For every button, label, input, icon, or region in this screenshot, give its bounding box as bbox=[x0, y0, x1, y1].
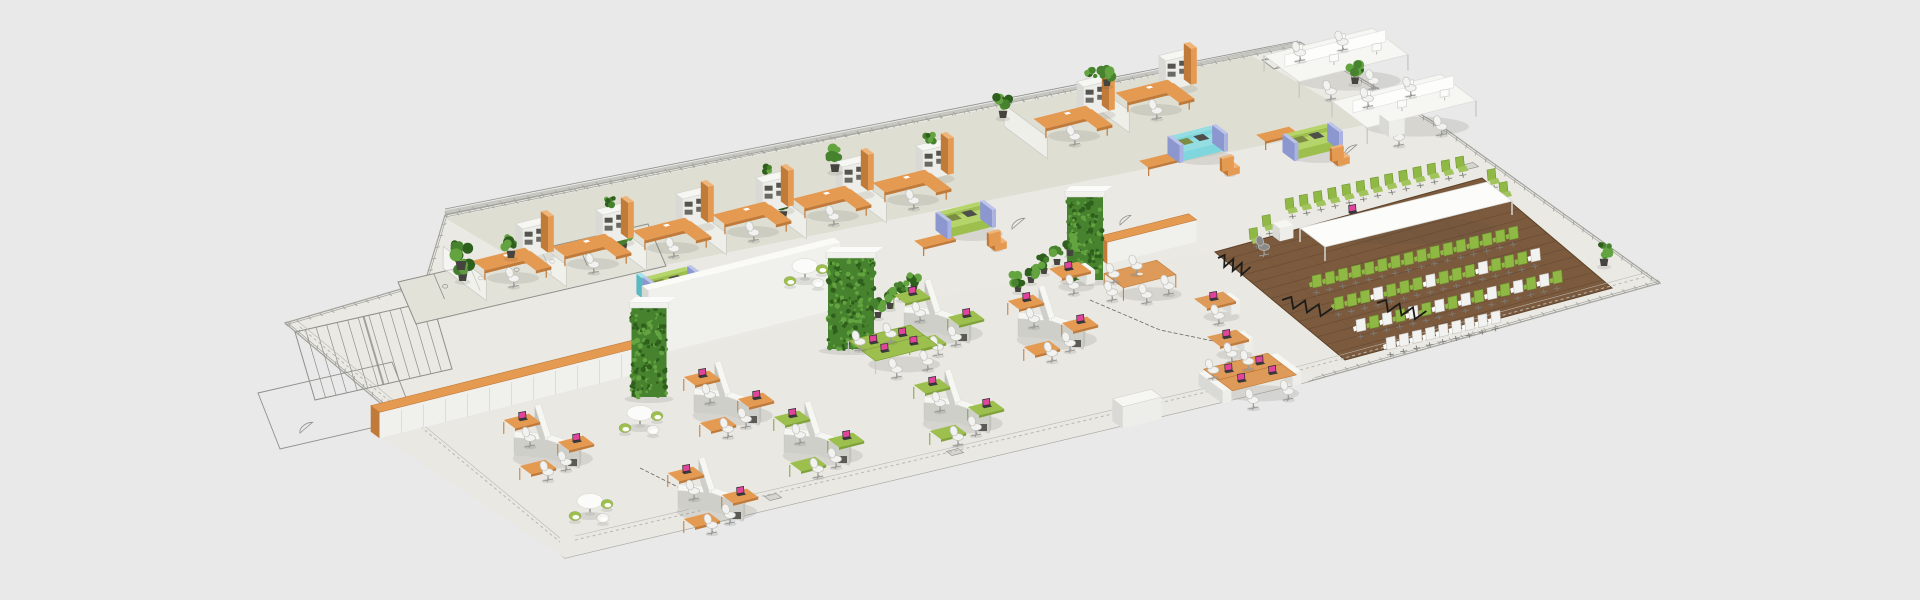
shelf-orange-panel bbox=[941, 132, 954, 175]
leaf bbox=[665, 339, 668, 342]
laptop-screen bbox=[1210, 291, 1217, 298]
laptop-screen bbox=[1023, 292, 1030, 299]
front-face bbox=[1295, 142, 1299, 161]
backrest bbox=[1435, 299, 1445, 313]
backrest bbox=[1351, 264, 1361, 278]
shelf-orange-panel bbox=[541, 210, 554, 253]
side-face bbox=[861, 149, 868, 190]
tub-chair bbox=[601, 499, 613, 512]
leaf bbox=[1088, 228, 1094, 234]
backrest bbox=[1427, 163, 1436, 175]
leaf bbox=[869, 260, 871, 262]
backrest bbox=[1313, 191, 1322, 203]
leaf bbox=[850, 276, 854, 280]
leaf bbox=[846, 279, 849, 282]
leaf bbox=[636, 375, 641, 380]
leaf bbox=[1084, 202, 1086, 204]
leaf bbox=[645, 391, 648, 394]
tub-seat bbox=[815, 282, 822, 286]
leaf bbox=[839, 327, 844, 332]
laptop-screen bbox=[929, 376, 936, 383]
tub-seat bbox=[787, 280, 794, 284]
leaf bbox=[641, 388, 643, 390]
leaf bbox=[1089, 67, 1096, 74]
leaf bbox=[653, 324, 655, 326]
leaf bbox=[992, 93, 1000, 101]
side-face bbox=[987, 232, 989, 247]
backrest bbox=[1386, 283, 1396, 297]
leaf bbox=[659, 336, 662, 339]
backrest bbox=[1338, 268, 1348, 282]
leaf bbox=[1091, 237, 1095, 241]
leaf bbox=[1091, 250, 1094, 253]
leaf bbox=[641, 384, 643, 386]
leaf bbox=[1083, 253, 1086, 256]
leaf bbox=[1095, 202, 1099, 206]
leaf bbox=[855, 320, 859, 324]
backrest bbox=[1504, 254, 1514, 268]
leaf bbox=[833, 310, 836, 313]
front-face bbox=[708, 185, 714, 222]
monitor-screen bbox=[1372, 43, 1381, 51]
leaf bbox=[656, 381, 659, 384]
leaf bbox=[631, 370, 633, 372]
leaf bbox=[833, 337, 837, 341]
shelf-slot bbox=[605, 218, 613, 223]
shelf-slot bbox=[605, 226, 613, 231]
backrest bbox=[1443, 242, 1453, 256]
front-face bbox=[1224, 133, 1228, 152]
leaf bbox=[835, 272, 840, 277]
leaf bbox=[635, 338, 641, 344]
leaf bbox=[1088, 259, 1092, 263]
leaf bbox=[832, 262, 835, 265]
leaf bbox=[843, 282, 846, 285]
leaf bbox=[858, 272, 862, 276]
laptop-screen bbox=[699, 368, 706, 375]
backrest bbox=[1412, 330, 1422, 344]
leaf bbox=[853, 325, 858, 330]
backrest bbox=[1360, 290, 1370, 304]
leaf bbox=[643, 359, 645, 361]
side-face bbox=[701, 181, 708, 222]
leaf bbox=[638, 350, 641, 353]
leaf bbox=[838, 344, 842, 348]
shelf-slot bbox=[1086, 90, 1094, 95]
leaf bbox=[648, 361, 651, 364]
leaf bbox=[1078, 198, 1082, 202]
pot bbox=[830, 164, 839, 172]
backrest bbox=[1400, 280, 1410, 294]
laptop-screen bbox=[1225, 364, 1232, 371]
leaf bbox=[864, 327, 868, 331]
tub-chair bbox=[651, 411, 663, 424]
leaf bbox=[644, 339, 650, 345]
leaf bbox=[826, 279, 831, 284]
leaf bbox=[1098, 207, 1102, 211]
leaf bbox=[841, 305, 845, 309]
leaf bbox=[651, 313, 656, 318]
backrest bbox=[1456, 239, 1466, 253]
laptop-screen bbox=[573, 433, 580, 440]
leaf bbox=[833, 345, 835, 347]
leaf bbox=[651, 310, 654, 313]
tub-seat bbox=[622, 427, 629, 431]
leaf bbox=[1017, 275, 1022, 280]
pot bbox=[886, 303, 893, 309]
leaf bbox=[901, 287, 905, 291]
leaf bbox=[1098, 265, 1102, 269]
backrest bbox=[1461, 292, 1471, 306]
backrest bbox=[1553, 270, 1563, 284]
leaf bbox=[843, 340, 845, 342]
leaf bbox=[642, 328, 646, 332]
front-face bbox=[1180, 144, 1184, 163]
leaf bbox=[1606, 243, 1612, 249]
shelf-slot bbox=[765, 194, 773, 199]
tub-seat bbox=[654, 415, 661, 419]
leaf bbox=[1093, 74, 1097, 78]
leaf bbox=[1087, 218, 1090, 221]
leaf bbox=[634, 314, 637, 317]
leaf bbox=[1082, 243, 1086, 247]
backrest bbox=[1384, 173, 1393, 185]
floorplan-stage bbox=[0, 0, 1920, 600]
laptop-screen bbox=[983, 398, 990, 405]
leaf bbox=[850, 297, 852, 299]
leaf bbox=[647, 354, 650, 357]
leaf bbox=[659, 324, 663, 328]
leaf bbox=[826, 153, 834, 161]
table-top bbox=[792, 259, 818, 274]
backrest bbox=[1404, 252, 1414, 266]
leaf bbox=[1100, 242, 1103, 245]
leaf bbox=[836, 313, 841, 318]
leaf bbox=[1082, 228, 1084, 230]
leaf bbox=[857, 307, 861, 311]
leaf bbox=[632, 393, 635, 396]
pillar-cap bbox=[1065, 191, 1105, 197]
leaf bbox=[866, 308, 869, 311]
leaf bbox=[861, 258, 864, 261]
pot bbox=[1066, 250, 1073, 256]
leaf bbox=[1601, 252, 1607, 258]
backrest bbox=[1285, 198, 1294, 210]
leaf bbox=[871, 331, 874, 334]
leaf bbox=[841, 268, 846, 273]
laptop-screen bbox=[870, 335, 877, 342]
leaf bbox=[1072, 201, 1076, 205]
leaf bbox=[1084, 234, 1086, 236]
front-face bbox=[992, 209, 996, 228]
front-face bbox=[948, 220, 952, 239]
leaf bbox=[652, 383, 655, 386]
leaf bbox=[663, 384, 668, 389]
leaf bbox=[605, 198, 610, 203]
leaf bbox=[855, 291, 859, 295]
leaf bbox=[1073, 212, 1076, 215]
table-base bbox=[585, 512, 595, 516]
leaf bbox=[661, 347, 665, 351]
table-tray bbox=[1137, 273, 1143, 276]
leaf bbox=[852, 311, 856, 315]
leaf bbox=[650, 384, 653, 387]
leaf bbox=[830, 300, 834, 304]
leaf bbox=[643, 384, 648, 389]
leaf bbox=[855, 313, 860, 318]
shelf-slot bbox=[1168, 72, 1176, 77]
leaf bbox=[1070, 223, 1073, 226]
backrest bbox=[1469, 236, 1479, 250]
leaf bbox=[1009, 271, 1017, 279]
backrest bbox=[1413, 166, 1422, 178]
leaf bbox=[1025, 270, 1031, 276]
leaf bbox=[858, 301, 861, 304]
leaf bbox=[846, 272, 851, 277]
laptop-screen bbox=[1065, 261, 1072, 268]
table-top bbox=[627, 406, 653, 421]
leaf bbox=[1099, 228, 1104, 233]
pot bbox=[874, 312, 881, 318]
backrest bbox=[1370, 177, 1379, 189]
front-face bbox=[788, 169, 794, 206]
leaf bbox=[828, 311, 830, 313]
pot bbox=[507, 251, 516, 258]
pillar-cap bbox=[630, 302, 669, 308]
leaf bbox=[840, 311, 843, 314]
leaf bbox=[894, 282, 899, 287]
leaf bbox=[869, 323, 874, 328]
backrest bbox=[1356, 318, 1366, 332]
backrest bbox=[1465, 264, 1475, 278]
leaf bbox=[659, 351, 664, 356]
laptop-screen bbox=[789, 408, 796, 415]
laptop-screen bbox=[963, 308, 970, 315]
leaf bbox=[835, 281, 837, 283]
side-face bbox=[1184, 43, 1191, 84]
leaf bbox=[871, 309, 874, 312]
laptop-screen bbox=[909, 286, 916, 293]
backrest bbox=[1509, 226, 1519, 240]
leaf bbox=[868, 328, 870, 330]
leaf bbox=[1094, 220, 1097, 223]
leaf bbox=[1099, 217, 1104, 222]
leaf bbox=[834, 299, 837, 302]
leaf bbox=[926, 133, 931, 138]
leaf bbox=[663, 314, 666, 317]
tub-seat bbox=[819, 268, 826, 272]
leaf bbox=[839, 270, 841, 272]
leaf bbox=[654, 342, 659, 347]
table-base bbox=[800, 277, 810, 281]
leaf bbox=[871, 264, 875, 268]
leaf bbox=[846, 309, 851, 314]
leaf bbox=[660, 355, 663, 358]
leaf bbox=[842, 287, 845, 290]
backrest bbox=[1325, 271, 1335, 285]
backrest bbox=[1441, 160, 1450, 172]
pot bbox=[456, 261, 467, 270]
leaf bbox=[647, 310, 650, 313]
laptop-screen bbox=[1238, 373, 1245, 380]
laptop-screen bbox=[1223, 329, 1230, 336]
pot bbox=[999, 111, 1008, 118]
leaf bbox=[848, 326, 852, 330]
side-face bbox=[1330, 147, 1332, 162]
shelf-orange-panel bbox=[701, 180, 714, 223]
leaf bbox=[845, 322, 847, 324]
shelf-slot bbox=[845, 178, 853, 183]
pillar-cap bbox=[826, 252, 876, 258]
tub-seat bbox=[600, 517, 607, 521]
leaf bbox=[1019, 280, 1025, 286]
leaf bbox=[649, 350, 651, 352]
leaf bbox=[632, 357, 637, 362]
backrest bbox=[1531, 248, 1541, 262]
tub-chair bbox=[569, 511, 581, 524]
laptop-screen bbox=[1349, 204, 1356, 211]
backrest bbox=[1426, 274, 1436, 288]
office-floorplan-render bbox=[0, 0, 1920, 600]
leaf bbox=[1072, 219, 1075, 222]
leaf bbox=[645, 329, 651, 335]
laptop-screen bbox=[737, 486, 744, 493]
backrest bbox=[1539, 273, 1549, 287]
backrest bbox=[1439, 270, 1449, 284]
shelf-slot bbox=[685, 202, 693, 207]
leaf bbox=[863, 332, 865, 334]
leaf bbox=[836, 282, 840, 286]
leaf bbox=[831, 313, 836, 318]
leaf bbox=[1067, 206, 1069, 208]
leaf bbox=[839, 347, 843, 351]
side-face bbox=[941, 133, 948, 174]
leaf bbox=[846, 283, 850, 287]
backrest bbox=[1328, 187, 1337, 199]
backrest bbox=[1500, 283, 1510, 297]
pillar-cap-top bbox=[630, 297, 676, 302]
backrest bbox=[1382, 312, 1392, 326]
leaf bbox=[657, 373, 661, 377]
leaf bbox=[867, 289, 871, 293]
leaf bbox=[630, 311, 635, 316]
backrest bbox=[1356, 180, 1365, 192]
leaf bbox=[862, 318, 866, 322]
leaf bbox=[632, 327, 635, 330]
tub-chair bbox=[784, 276, 796, 289]
backrest bbox=[1452, 267, 1462, 281]
backrest bbox=[1386, 336, 1396, 350]
backrest bbox=[1413, 277, 1423, 291]
leaf bbox=[836, 263, 840, 267]
leaf bbox=[659, 312, 662, 315]
backrest bbox=[1513, 280, 1523, 294]
tub-seat bbox=[650, 429, 657, 433]
leaf bbox=[828, 286, 830, 288]
leaf bbox=[641, 367, 646, 372]
front-face bbox=[628, 201, 634, 238]
shelf-orange-panel bbox=[621, 196, 634, 239]
backrest bbox=[1517, 251, 1527, 265]
leaf bbox=[653, 394, 656, 397]
leaf bbox=[889, 287, 898, 296]
pillar-cap-top bbox=[826, 247, 883, 252]
leaf bbox=[1088, 200, 1094, 206]
leaf bbox=[1092, 257, 1095, 260]
backrest bbox=[1425, 326, 1435, 340]
pot bbox=[1053, 259, 1060, 265]
leaf bbox=[1598, 242, 1603, 247]
leaf bbox=[631, 381, 636, 386]
leaf bbox=[653, 365, 657, 369]
leaf bbox=[640, 381, 643, 384]
laptop-screen bbox=[753, 390, 760, 397]
leaf bbox=[637, 353, 640, 356]
tub-seat bbox=[604, 503, 611, 507]
laptop-screen bbox=[910, 336, 917, 343]
leaf bbox=[1101, 238, 1104, 241]
leaf bbox=[831, 287, 836, 292]
leaf bbox=[635, 352, 638, 355]
leaf bbox=[647, 345, 650, 348]
leaf bbox=[638, 343, 643, 348]
leaf bbox=[1038, 261, 1045, 268]
leaf bbox=[928, 137, 933, 142]
chair-back bbox=[1220, 154, 1234, 172]
tub-chair bbox=[597, 513, 609, 526]
shelf-slot bbox=[925, 154, 933, 159]
front-face bbox=[1223, 389, 1232, 404]
side-face bbox=[621, 197, 628, 238]
leaf bbox=[861, 293, 864, 296]
laptop-screen bbox=[899, 328, 906, 335]
tub-chair bbox=[647, 425, 659, 438]
leaf bbox=[1095, 255, 1098, 258]
leaf bbox=[1077, 218, 1082, 223]
side-face bbox=[541, 211, 548, 252]
monitor-screen bbox=[1440, 89, 1449, 97]
shelf-slot bbox=[1168, 64, 1176, 69]
backrest bbox=[1312, 274, 1322, 288]
table-top bbox=[577, 494, 603, 509]
leaf bbox=[864, 297, 868, 301]
leaf bbox=[851, 301, 855, 305]
leaf bbox=[843, 301, 847, 305]
backrest bbox=[1474, 289, 1484, 303]
backrest bbox=[1478, 261, 1488, 275]
shelf-orange-panel bbox=[1184, 42, 1197, 85]
leaf bbox=[865, 322, 869, 326]
front-face bbox=[948, 137, 954, 174]
leaf bbox=[634, 361, 640, 367]
pot bbox=[1351, 77, 1359, 84]
tub-seat bbox=[572, 515, 579, 519]
shelf-slot bbox=[525, 240, 533, 245]
side-face bbox=[781, 165, 788, 206]
leaf bbox=[660, 330, 663, 333]
leaf bbox=[858, 319, 862, 323]
leaf bbox=[647, 364, 652, 369]
laptop-screen bbox=[843, 430, 850, 437]
shelf-slot bbox=[525, 232, 533, 237]
leaf bbox=[662, 362, 664, 364]
leaf bbox=[647, 321, 651, 325]
leaf bbox=[630, 374, 634, 378]
leaf bbox=[855, 300, 858, 303]
leaf bbox=[1093, 243, 1097, 247]
leaf bbox=[865, 274, 870, 279]
side-face bbox=[1220, 157, 1222, 172]
